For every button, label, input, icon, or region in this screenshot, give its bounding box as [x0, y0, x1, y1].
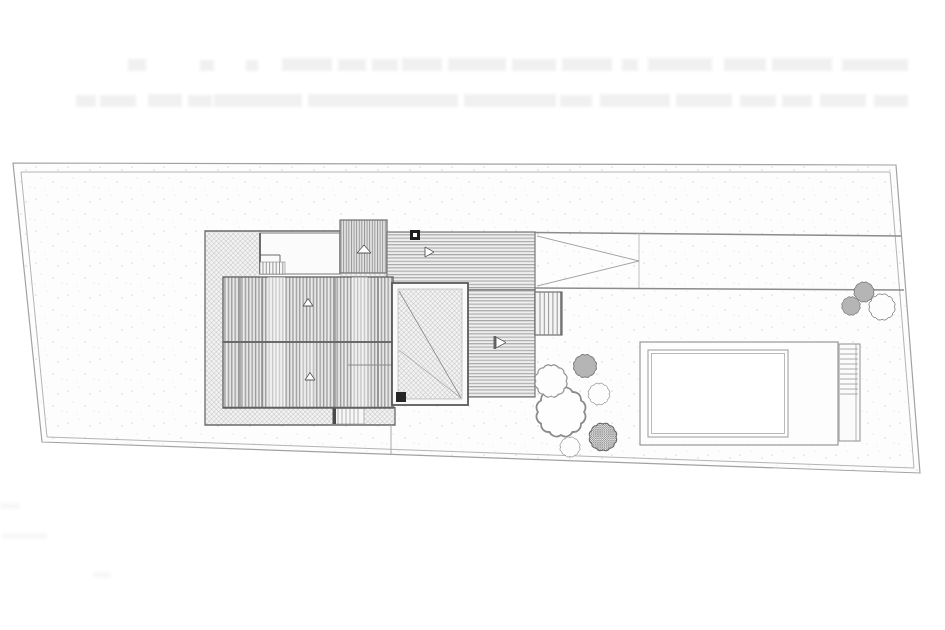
bush: [869, 294, 895, 320]
bush-dark: [574, 355, 597, 378]
notch-room: [260, 233, 340, 274]
swimming-pool: [640, 342, 860, 445]
main-roof: [223, 277, 395, 408]
bush-dark: [842, 297, 860, 315]
corner-post-square: [396, 392, 406, 402]
terrace-stair-north: [260, 262, 285, 274]
upper-roof-block: [340, 220, 387, 273]
bush: [560, 437, 580, 457]
pool-water: [648, 350, 788, 437]
bush: [588, 383, 609, 404]
deck-stair-east: [535, 292, 562, 335]
site-plan-scan: [0, 0, 945, 630]
bush-dark: [589, 423, 617, 451]
bush: [535, 365, 567, 397]
pergola: [392, 283, 468, 405]
terrace-stair-south: [333, 408, 365, 425]
pool-steps: [839, 344, 860, 441]
site-plan-drawing: [0, 0, 945, 630]
